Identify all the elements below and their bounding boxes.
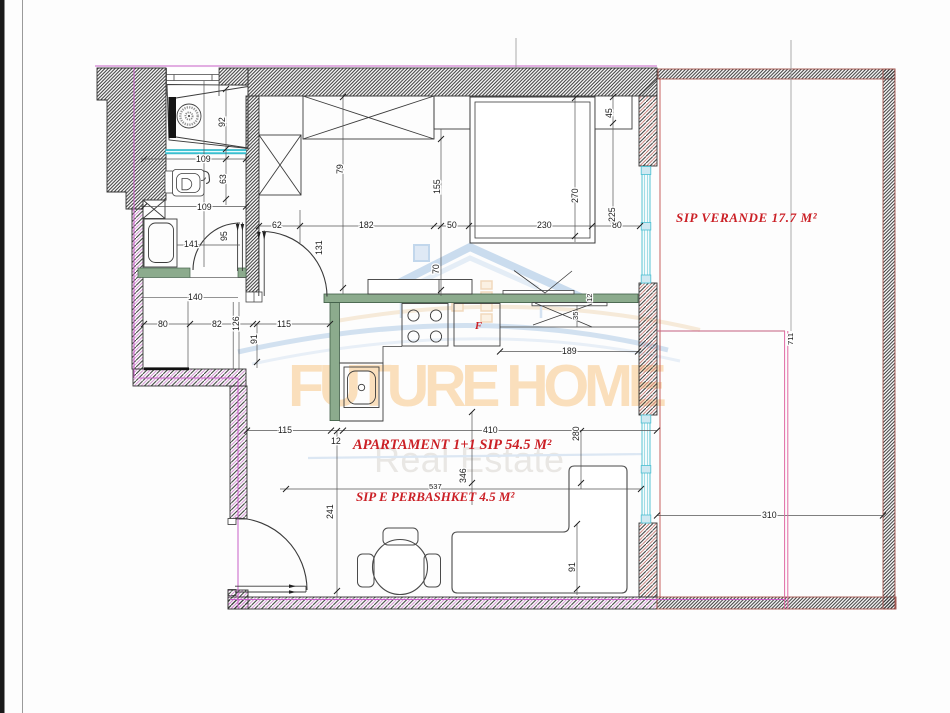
svg-text:92: 92 [217,117,227,127]
svg-text:79: 79 [335,164,345,174]
svg-text:80: 80 [158,319,168,329]
svg-text:131: 131 [314,240,324,255]
svg-text:189: 189 [562,346,577,356]
svg-text:126: 126 [231,316,241,331]
svg-text:182: 182 [359,220,374,230]
svg-text:141: 141 [184,239,199,249]
svg-text:62: 62 [272,220,282,230]
svg-text:346: 346 [458,468,468,483]
svg-text:70: 70 [431,264,441,274]
svg-text:SIP VERANDE 17.7 M²: SIP VERANDE 17.7 M² [676,210,818,225]
svg-text:230: 230 [537,220,552,230]
svg-text:155: 155 [432,179,442,194]
svg-text:711: 711 [786,333,795,345]
svg-text:270: 270 [570,188,580,203]
svg-text:225: 225 [607,207,617,222]
svg-text:410: 410 [483,425,498,435]
svg-text:91: 91 [249,334,259,344]
svg-text:APARTAMENT 1+1 SIP 54.5 M²: APARTAMENT 1+1 SIP 54.5 M² [352,437,552,453]
svg-text:50: 50 [447,220,457,230]
svg-text:280: 280 [571,426,581,441]
svg-text:45: 45 [604,108,614,118]
svg-text:12: 12 [331,436,341,446]
svg-text:95: 95 [219,231,229,241]
svg-text:12: 12 [585,294,594,302]
svg-text:F: F [474,321,482,332]
svg-text:SIP E PERBASHKET 4.5 M²: SIP E PERBASHKET 4.5 M² [356,489,515,504]
svg-text:310: 310 [762,510,777,520]
svg-text:109: 109 [197,202,212,212]
svg-text:115: 115 [277,319,291,329]
svg-text:140: 140 [188,292,203,302]
svg-text:109: 109 [196,154,211,164]
svg-text:115: 115 [278,425,292,435]
svg-text:63: 63 [218,174,228,184]
svg-text:35: 35 [571,312,580,320]
svg-text:241: 241 [325,504,335,519]
svg-text:91: 91 [567,562,577,572]
svg-text:82: 82 [212,319,222,329]
